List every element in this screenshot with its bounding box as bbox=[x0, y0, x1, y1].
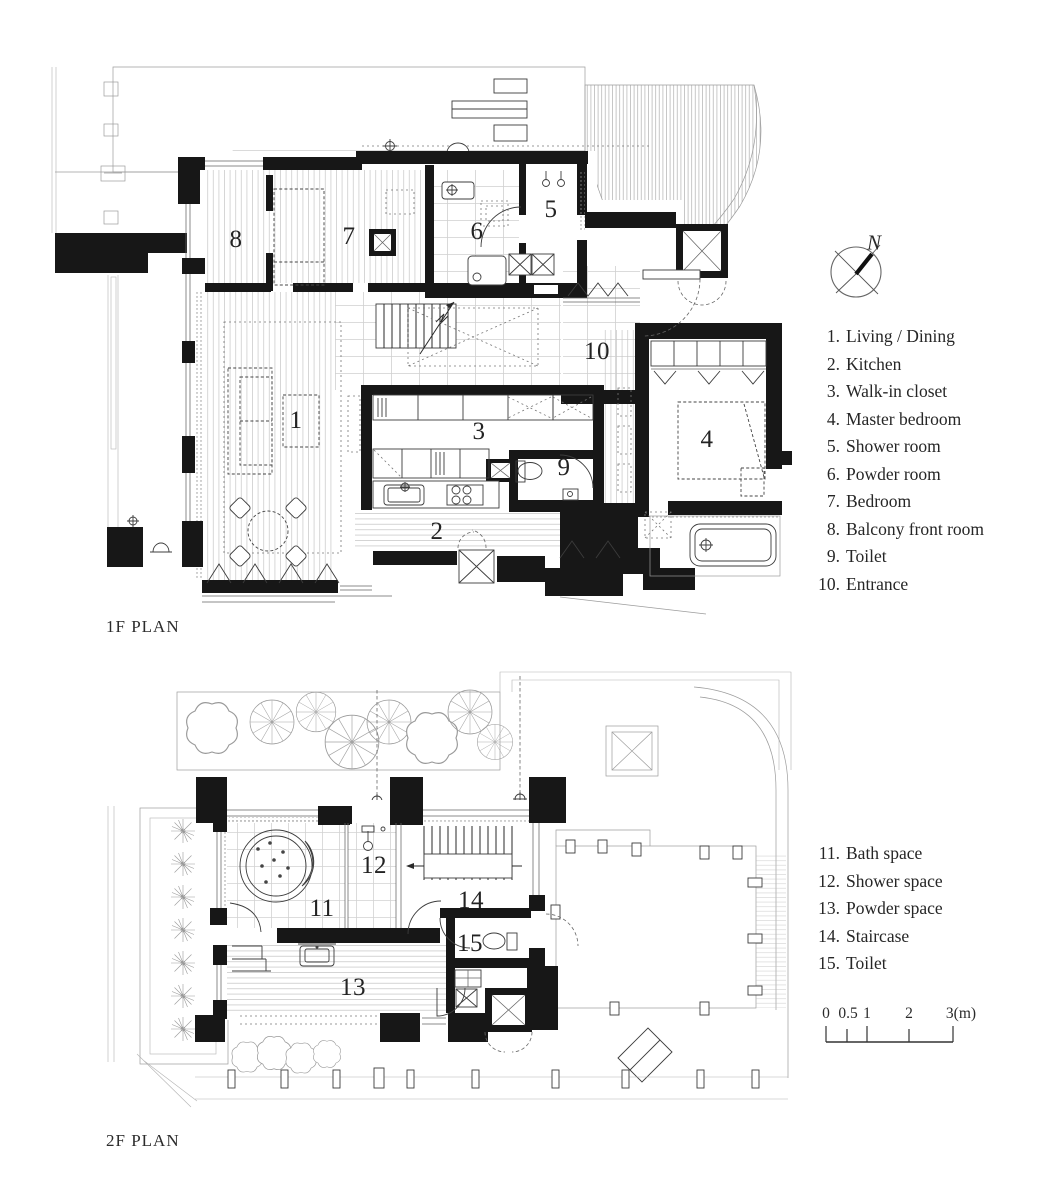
legend-item: 12Shower space bbox=[810, 868, 1030, 896]
scale-label-2: 2 bbox=[905, 1005, 913, 1023]
legend-label: Shower space bbox=[846, 868, 943, 896]
room-number-1f-balcony-front: 8 bbox=[230, 226, 243, 254]
floor-plan-sheet: 1 2 3 4 5 6 7 8 9 10 11 12 13 14 15 1F P… bbox=[0, 0, 1051, 1200]
legend-num: 8 bbox=[810, 516, 840, 544]
legend-label: Kitchen bbox=[846, 351, 901, 379]
legend-item: 7Bedroom bbox=[810, 488, 1030, 516]
legend-num: 5 bbox=[810, 433, 840, 461]
legend-num: 3 bbox=[810, 378, 840, 406]
scale-label-05: 0.5 bbox=[838, 1005, 857, 1023]
legend-item: 14Staircase bbox=[810, 923, 1030, 951]
legend-label: Shower room bbox=[846, 433, 941, 461]
planter-box bbox=[459, 550, 494, 583]
room-number-1f-living: 1 bbox=[290, 407, 303, 435]
roof-deck bbox=[551, 830, 786, 1082]
stair-1f bbox=[376, 302, 456, 354]
room-number-2f-staircase: 14 bbox=[458, 887, 484, 915]
legend-num: 11 bbox=[810, 840, 840, 868]
legend-num: 4 bbox=[810, 406, 840, 434]
plan-title-2f: 2F PLAN bbox=[106, 1131, 180, 1151]
legend-1f: 1Living / Dining 2Kitchen 3Walk-in close… bbox=[810, 323, 1030, 598]
legend-label: Bath space bbox=[846, 840, 922, 868]
legend-num: 9 bbox=[810, 543, 840, 571]
room-number-1f-powder: 6 bbox=[471, 218, 484, 246]
legend-item: 15Toilet bbox=[810, 950, 1030, 978]
legend-item: 11Bath space bbox=[810, 840, 1030, 868]
room-number-1f-kitchen: 2 bbox=[431, 518, 444, 546]
architectural-drawing bbox=[0, 0, 1051, 1200]
room-number-1f-shower: 5 bbox=[545, 196, 558, 224]
legend-item: 2Kitchen bbox=[810, 351, 1030, 379]
elevator-2f bbox=[485, 988, 532, 1052]
room-number-1f-master-bedroom: 4 bbox=[701, 426, 714, 454]
scale-label-0: 0 bbox=[822, 1005, 830, 1023]
legend-item: 10Entrance bbox=[810, 571, 1030, 599]
room-number-1f-toilet: 9 bbox=[558, 454, 571, 482]
floor-plan-2f-drawing bbox=[108, 672, 791, 1107]
scale-label-3m: 3(m) bbox=[946, 1005, 976, 1023]
legend-label: Living / Dining bbox=[846, 323, 955, 351]
legend-2f: 11Bath space 12Shower space 13Powder spa… bbox=[810, 840, 1030, 978]
legend-num: 7 bbox=[810, 488, 840, 516]
legend-num: 10 bbox=[810, 571, 840, 599]
legend-num: 6 bbox=[810, 461, 840, 489]
legend-label: Balcony front room bbox=[846, 516, 984, 544]
legend-num: 1 bbox=[810, 323, 840, 351]
legend-item: 9Toilet bbox=[810, 543, 1030, 571]
legend-item: 13Powder space bbox=[810, 895, 1030, 923]
legend-label: Toilet bbox=[846, 950, 887, 978]
legend-num: 15 bbox=[810, 950, 840, 978]
legend-num: 2 bbox=[810, 351, 840, 379]
legend-item: 1Living / Dining bbox=[810, 323, 1030, 351]
room-number-2f-bath: 11 bbox=[309, 895, 334, 923]
legend-label: Toilet bbox=[846, 543, 887, 571]
legend-label: Powder room bbox=[846, 461, 941, 489]
legend-item: 8Balcony front room bbox=[810, 516, 1030, 544]
legend-label: Staircase bbox=[846, 923, 909, 951]
legend-num: 12 bbox=[810, 868, 840, 896]
floor-plan-1f-drawing bbox=[52, 67, 792, 614]
legend-num: 14 bbox=[810, 923, 840, 951]
legend-label: Walk-in closet bbox=[846, 378, 947, 406]
room-number-2f-shower: 12 bbox=[361, 852, 387, 880]
legend-item: 5Shower room bbox=[810, 433, 1030, 461]
legend-item: 6Powder room bbox=[810, 461, 1030, 489]
room-number-2f-powder: 13 bbox=[340, 974, 366, 1002]
legend-item: 3Walk-in closet bbox=[810, 378, 1030, 406]
room-number-2f-toilet: 15 bbox=[457, 930, 483, 958]
legend-label: Entrance bbox=[846, 571, 908, 599]
scale-label-1: 1 bbox=[863, 1005, 871, 1023]
room-number-1f-entrance: 10 bbox=[584, 338, 610, 366]
room-number-1f-closet: 3 bbox=[473, 418, 486, 446]
north-label: N bbox=[867, 231, 881, 256]
room-number-1f-bedroom: 7 bbox=[343, 223, 356, 251]
elevator-1f bbox=[676, 224, 728, 305]
legend-num: 13 bbox=[810, 895, 840, 923]
legend-label: Bedroom bbox=[846, 488, 911, 516]
plan-title-1f: 1F PLAN bbox=[106, 617, 180, 637]
legend-item: 4Master bedroom bbox=[810, 406, 1030, 434]
scale-bar bbox=[826, 1026, 953, 1042]
legend-label: Powder space bbox=[846, 895, 943, 923]
legend-label: Master bedroom bbox=[846, 406, 961, 434]
